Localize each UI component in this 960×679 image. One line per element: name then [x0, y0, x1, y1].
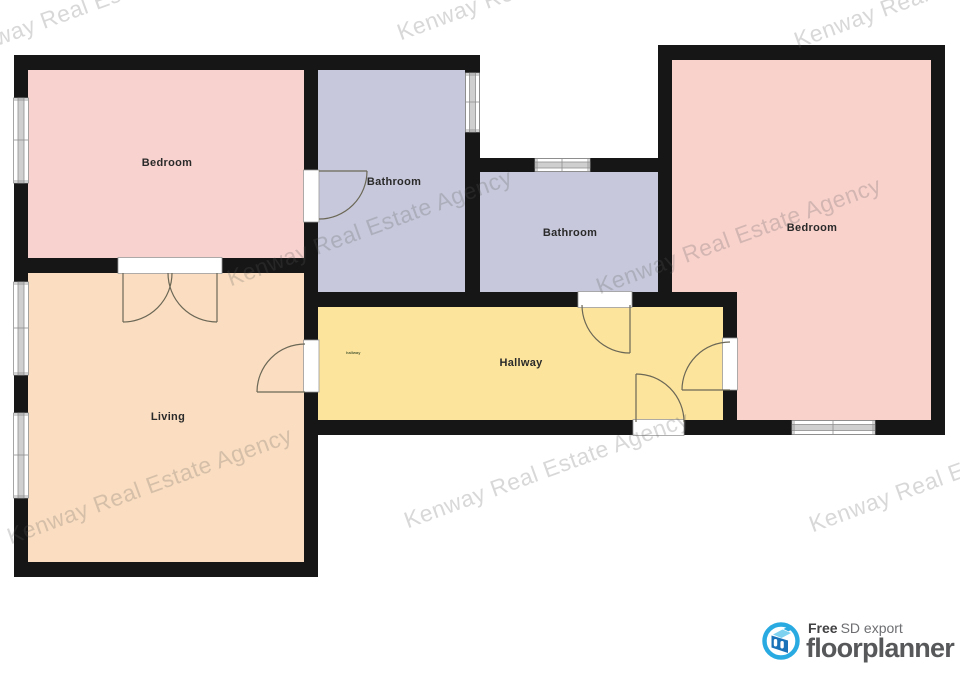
door-opening-entrance [633, 420, 684, 436]
door-opening-bedroom1-living [118, 258, 222, 274]
door-opening-living-hallway [304, 340, 320, 392]
window-living-left-upper [14, 282, 29, 375]
floorplan-canvas: Bedroom Bathroom Bathroom Bedroom Living… [0, 0, 960, 679]
label-living: Living [151, 411, 185, 423]
label-bedroom-2: Bedroom [787, 222, 837, 234]
floorplanner-logo-icon [760, 620, 802, 662]
door-opening-bedroom1-bathroom1 [304, 170, 320, 222]
door-opening-hallway-bedroom2 [723, 338, 738, 390]
logo-arch-right [780, 641, 783, 649]
logo-arch-left [774, 639, 777, 647]
label-hallway: Hallway [499, 357, 542, 369]
window-bedroom2-bottom [792, 421, 875, 435]
wall-right-outer [931, 45, 945, 435]
wall-center-vertical [304, 55, 318, 577]
label-hallway-mini: hallway [346, 350, 360, 355]
wall-hallway-top [305, 292, 737, 307]
window-living-left-lower [14, 413, 29, 498]
label-bathroom-2: Bathroom [543, 227, 597, 239]
wall-bedroom2-left [658, 45, 672, 307]
floorplan-drawing [0, 0, 960, 679]
label-bedroom-1: Bedroom [142, 157, 192, 169]
floorplanner-wordmark: floorplanner [806, 633, 954, 664]
label-bathroom-1: Bathroom [367, 176, 421, 188]
wall-top-right-section [658, 45, 945, 60]
window-bathroom2-top [535, 159, 590, 172]
window-bedroom1-left [14, 98, 29, 183]
door-opening-bathroom2-hallway [578, 292, 632, 308]
wall-living-bottom [14, 562, 318, 577]
wall-top-left-section [14, 55, 480, 70]
window-bathroom1-right [466, 73, 480, 132]
